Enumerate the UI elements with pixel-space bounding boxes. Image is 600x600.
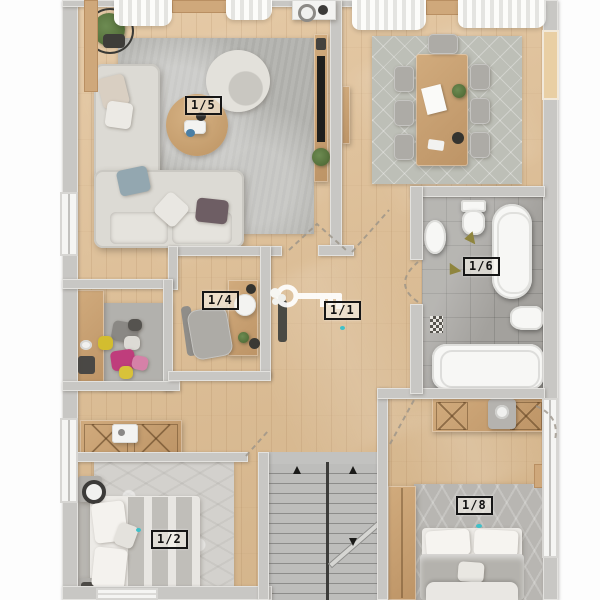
bath-mat: [430, 316, 443, 333]
room-label-study: 1/4: [202, 291, 239, 310]
room-label-bedroom-main: 1/2: [151, 530, 188, 549]
window-bottom-bedroom: [96, 588, 158, 600]
curtain: [226, 0, 272, 20]
decor-dot-teal: [340, 326, 345, 330]
bed-pillow: [91, 546, 128, 589]
window-left-bedroom: [60, 418, 78, 503]
curtain: [114, 0, 172, 26]
room-label-bathroom: 1/6: [463, 257, 500, 276]
floor-vase: [278, 300, 287, 342]
wall-dressing-south: [62, 381, 180, 391]
wall-stairs-west: [258, 452, 269, 600]
curtain: [458, 0, 546, 28]
wall-bath-west-lower: [410, 304, 423, 394]
room-label-living: 1/5: [185, 96, 222, 115]
table-decor-blue: [186, 129, 195, 137]
floorplan-canvas: 1/5 1/4 1/1 1/6 1/2 1/8: [0, 0, 600, 600]
wall-bath-north: [410, 186, 545, 197]
tray-decor: [118, 429, 125, 436]
window-frame-top: [426, 0, 460, 15]
stairs-landing: [269, 452, 378, 464]
wardrobe-seam: [401, 488, 403, 598]
decor-dot-teal: [476, 524, 482, 528]
sideboard-decor: [78, 356, 95, 374]
sink-basin: [495, 405, 509, 419]
window-right-bedroom: [542, 398, 558, 558]
window-frame-top: [172, 0, 228, 13]
wall-dressing-north: [62, 279, 172, 289]
pouf-white: [124, 336, 140, 350]
desk-cup: [246, 284, 256, 294]
window-left-living: [60, 192, 78, 256]
toilet: [462, 210, 485, 235]
dining-chair: [394, 100, 414, 126]
plant-pot: [103, 34, 125, 48]
wall-study-east: [260, 246, 271, 378]
wall-bedroom-main-north: [74, 452, 248, 462]
stairs-divider: [326, 462, 329, 600]
console-tray: [112, 424, 138, 443]
bed-pillow: [473, 529, 518, 557]
dining-chair: [470, 98, 490, 124]
wall-exterior-bottom: [62, 586, 272, 600]
sideboard-bowl: [80, 340, 92, 350]
cooktop-burner: [318, 5, 328, 15]
window-frame-wood: [84, 0, 98, 92]
stairs-direction-arrow: [349, 466, 357, 474]
pouf-yellow: [98, 336, 113, 350]
stairs-left-flight: [269, 464, 326, 600]
wall-hung-toilet: [510, 306, 543, 330]
dining-chair: [394, 134, 414, 160]
decor-dot-teal: [136, 528, 141, 532]
wall-exterior-left: [62, 0, 78, 600]
bed-pillow-small: [457, 561, 484, 583]
bathroom-sink: [424, 220, 446, 254]
dark-bowl: [452, 132, 464, 144]
dining-chair: [394, 66, 414, 92]
desk-decor: [249, 338, 260, 349]
pillow-plum: [195, 197, 229, 224]
pouf-dark: [128, 319, 142, 331]
pillow: [104, 100, 133, 129]
console-x-panel: [134, 424, 178, 453]
curtain: [352, 0, 426, 30]
vanity-x-panel: [436, 402, 468, 430]
wall-partition-living-dining: [330, 0, 342, 248]
dining-chair-head: [428, 34, 458, 54]
napkin: [427, 139, 444, 151]
wall-bath-south: [377, 388, 545, 399]
console-decor: [316, 38, 326, 50]
bathtub-inner: [440, 350, 540, 388]
table-plant: [452, 84, 466, 98]
wall-shelf: [342, 86, 350, 144]
room-label-hallway: 1/1: [324, 301, 361, 320]
console-plant: [312, 148, 330, 166]
bed-fold: [426, 582, 518, 600]
wall-study-south: [168, 371, 271, 381]
desk-plant: [238, 332, 249, 343]
pouf-yellow: [119, 366, 133, 379]
dining-chair: [470, 132, 490, 158]
dining-chair: [470, 64, 490, 90]
kitchen-sink: [298, 4, 316, 22]
bathtub-inner-rim: [497, 212, 531, 294]
wall-bath-west-upper: [410, 186, 423, 260]
flower-white: [278, 294, 286, 302]
wall-partition-cap: [318, 245, 354, 256]
flower-white: [272, 298, 279, 305]
tv-screen: [317, 56, 325, 142]
stairs-direction-arrow: [293, 466, 301, 474]
wall-stairs-east: [377, 388, 388, 600]
stairs-direction-arrow: [349, 538, 357, 546]
room-label-bedroom-second: 1/8: [456, 496, 493, 515]
bedside-lamp: [82, 480, 106, 504]
office-chair: [186, 305, 234, 361]
window-right-dining: [542, 30, 559, 100]
